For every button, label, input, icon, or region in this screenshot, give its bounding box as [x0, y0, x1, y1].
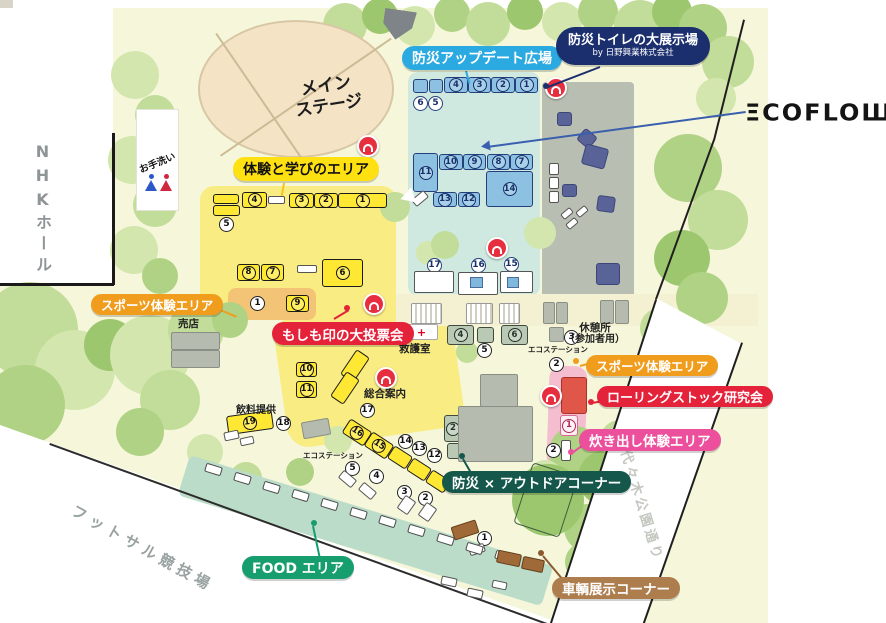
booth-yellow-11: 11	[296, 381, 317, 398]
building-block	[600, 300, 614, 324]
badge-update-plaza: 防災アップデート広場	[402, 46, 562, 70]
booth-blue-8: 8	[487, 154, 510, 170]
rest-area-label: 休憩所 （参加者用）	[565, 322, 625, 346]
unit-detail	[470, 277, 483, 288]
number-circle-2: 2	[546, 443, 561, 458]
drinks-label: 飲料提供	[236, 401, 276, 416]
pointer-dot	[543, 83, 549, 89]
badge-sports-area-right: スポーツ体験エリア	[586, 355, 718, 376]
headset-glyph	[492, 246, 502, 254]
number-circle-2: 2	[549, 357, 564, 372]
small-structure	[549, 191, 559, 203]
small-structure	[297, 265, 317, 273]
restroom-sign: お手洗い	[137, 110, 178, 210]
booth-yellow-2: 2	[314, 193, 338, 208]
event-map: + 43218769101119161543211110987141312511…	[0, 0, 886, 623]
number-circle-17: 17	[360, 403, 375, 418]
number-circle-12: 12	[427, 448, 442, 463]
tent-structure	[466, 303, 493, 324]
nhk-hall-area	[0, 8, 113, 285]
booth-blue-3: 3	[468, 77, 491, 93]
pointer-dot	[459, 453, 465, 459]
pointer-dot	[538, 550, 544, 556]
restroom-label: お手洗い	[137, 148, 177, 175]
booth-yellow-6: 6	[322, 259, 363, 287]
badge-food: FOOD エリア	[242, 556, 354, 579]
announcer-icon	[486, 237, 508, 259]
pointer-dot	[573, 358, 579, 364]
announcer-icon	[540, 385, 562, 407]
number-circle-1: 1	[250, 296, 265, 311]
nhk-hall-label: NHKホール	[30, 142, 54, 277]
tree	[111, 51, 159, 99]
booth-blue	[429, 79, 443, 93]
tent-structure	[499, 303, 520, 324]
headset-glyph	[551, 86, 561, 94]
announcer-icon	[357, 135, 379, 157]
ecoflow-logo: ΞCOFLOШ	[745, 100, 886, 127]
badge-cooking: 炊き出し体験エリア	[579, 429, 721, 451]
booth-blue-11: 11	[413, 153, 438, 192]
voting-booth	[561, 377, 587, 414]
number-circle-5: 5	[219, 217, 234, 232]
booth-yellow	[213, 205, 240, 216]
announcer-icon	[363, 293, 385, 315]
small-structure	[549, 163, 559, 175]
badge-rolling-stock: ローリングストック研究会	[597, 386, 773, 407]
booth-blue-4: 4	[444, 77, 468, 93]
number-circle-14: 14	[398, 434, 413, 449]
headset-glyph	[546, 394, 556, 402]
badge-sports-area-left: スポーツ体験エリア	[91, 294, 223, 315]
number-circle-5: 5	[477, 343, 492, 358]
booth-blue-13: 13	[433, 192, 457, 207]
tree	[466, 2, 510, 46]
booth-yellow-1: 1	[338, 193, 387, 208]
headset-glyph	[363, 144, 373, 152]
male-icon	[145, 174, 157, 191]
eco-station-south-label: エコステーション	[303, 450, 363, 461]
pointer-dot	[344, 305, 350, 311]
toilet-exhibit-unit	[557, 112, 572, 126]
number-circle-blue-6: 6	[413, 96, 428, 111]
number-circle-blue-5: 5	[428, 96, 443, 111]
booth-yellow-7: 7	[261, 264, 284, 281]
small-structure	[549, 177, 559, 189]
booth-green-6: 6	[501, 325, 528, 345]
building-block	[556, 302, 568, 324]
booth-blue	[413, 79, 428, 93]
pointer-dot	[588, 399, 594, 405]
nhk-boundary-line-h	[0, 283, 114, 286]
headset-glyph	[369, 302, 379, 310]
booth-blue-9: 9	[463, 154, 486, 170]
pointer-dot	[311, 520, 317, 526]
small-structure	[414, 271, 454, 293]
booth-yellow-10: 10	[296, 362, 317, 377]
booth-yellow-4: 4	[242, 192, 267, 208]
building-block	[171, 332, 220, 350]
booth-blue-12: 12	[458, 192, 480, 207]
tree	[696, 78, 736, 118]
booth-yellow-8: 8	[237, 264, 260, 281]
booth-blue-7: 7	[510, 154, 533, 170]
building-block	[549, 327, 564, 342]
number-circle-blue-16: 16	[471, 258, 486, 273]
small-structure	[268, 196, 285, 204]
shop-label: 売店	[178, 316, 199, 331]
cooking-booth-1: 1	[560, 415, 578, 436]
booth-blue-14: 14	[486, 171, 533, 207]
number-circle-13: 13	[412, 441, 427, 456]
building-block	[171, 350, 220, 368]
building-block	[615, 300, 629, 324]
building-block	[543, 302, 555, 324]
pointer-dot	[568, 449, 574, 455]
booth-yellow-9: 9	[286, 295, 309, 312]
badge-learning-area: 体験と学びのエリア	[233, 157, 379, 181]
tree	[286, 458, 314, 486]
nhk-boundary-line-v	[112, 133, 115, 285]
red-cross-icon: +	[417, 327, 426, 338]
tree	[116, 408, 164, 456]
building-block	[480, 374, 518, 407]
ecoflow-arrowhead	[480, 140, 490, 151]
booth-blue-10: 10	[439, 154, 463, 170]
tent-structure	[411, 303, 442, 324]
booth-yellow	[213, 194, 239, 204]
number-circle-4: 4	[369, 469, 384, 484]
unit-detail	[507, 277, 519, 288]
booth-green	[477, 327, 494, 343]
female-icon	[160, 174, 172, 191]
tree	[431, 231, 459, 259]
booth-green-4: 4	[447, 325, 474, 345]
headset-glyph	[381, 376, 391, 384]
booth-blue-1: 1	[515, 77, 538, 93]
building-block	[458, 406, 533, 462]
toilet-exhibit-unit	[562, 184, 577, 197]
booth-blue-2: 2	[491, 77, 515, 93]
eco-station-mid-label: エコステーション	[528, 344, 588, 355]
tree	[524, 217, 556, 249]
badge-toilet-expo: 防災トイレの大展示場 by 日野興業株式会社	[556, 27, 710, 65]
number-circle-18: 18	[276, 416, 291, 431]
toilet-exhibit-unit	[596, 263, 620, 285]
info-desk-label: 総合案内	[364, 386, 406, 401]
tree	[142, 258, 178, 294]
booth-yellow-3: 3	[289, 193, 314, 208]
badge-voting: もしも印の大投票会	[272, 322, 414, 345]
badge-vehicle: 車輌展示コーナー	[552, 577, 680, 599]
toilet-exhibit-unit	[596, 195, 616, 213]
number-circle-blue-15: 15	[504, 257, 519, 272]
badge-outdoor: 防災 × アウトドアコーナー	[442, 471, 631, 493]
